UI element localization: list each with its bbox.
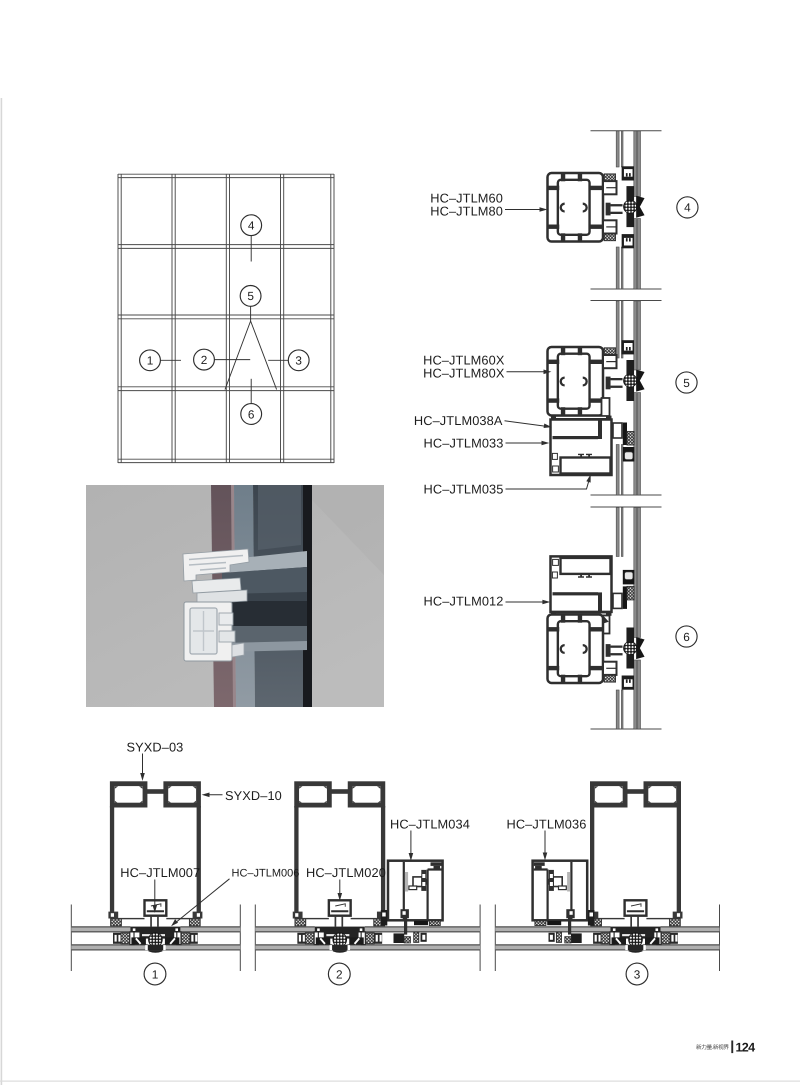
svg-text:HC–JTLM035: HC–JTLM035: [424, 481, 504, 496]
svg-text:新力量.新视界: 新力量.新视界: [696, 1044, 729, 1051]
svg-text:HC–JTLM80X: HC–JTLM80X: [423, 366, 505, 381]
svg-text:1: 1: [147, 354, 154, 368]
svg-text:3: 3: [634, 967, 641, 981]
svg-text:HC–JTLM033: HC–JTLM033: [424, 435, 504, 450]
svg-text:HC–JTLM012: HC–JTLM012: [424, 593, 504, 608]
svg-text:HC–JTLM020: HC–JTLM020: [306, 865, 386, 880]
svg-text:124: 124: [736, 1040, 756, 1054]
svg-text:3: 3: [295, 354, 302, 368]
svg-text:4: 4: [684, 201, 691, 215]
svg-text:HC–JTLM038A: HC–JTLM038A: [414, 413, 503, 428]
svg-text:2: 2: [201, 353, 208, 367]
svg-text:HC–JTLM006: HC–JTLM006: [232, 867, 300, 879]
svg-text:4: 4: [248, 219, 255, 233]
svg-text:HC–JTLM034: HC–JTLM034: [390, 816, 470, 831]
svg-text:HC–JTLM007: HC–JTLM007: [120, 865, 200, 880]
svg-text:5: 5: [247, 289, 254, 303]
svg-text:6: 6: [248, 407, 255, 421]
svg-text:HC–JTLM036: HC–JTLM036: [507, 816, 587, 831]
svg-text:SYXD–03: SYXD–03: [127, 740, 184, 755]
svg-text:6: 6: [683, 630, 690, 644]
svg-text:HC–JTLM80: HC–JTLM80: [430, 204, 503, 219]
svg-text:1: 1: [152, 967, 159, 981]
svg-text:5: 5: [683, 376, 690, 390]
svg-text:SYXD–10: SYXD–10: [225, 788, 282, 803]
svg-text:2: 2: [336, 967, 343, 981]
